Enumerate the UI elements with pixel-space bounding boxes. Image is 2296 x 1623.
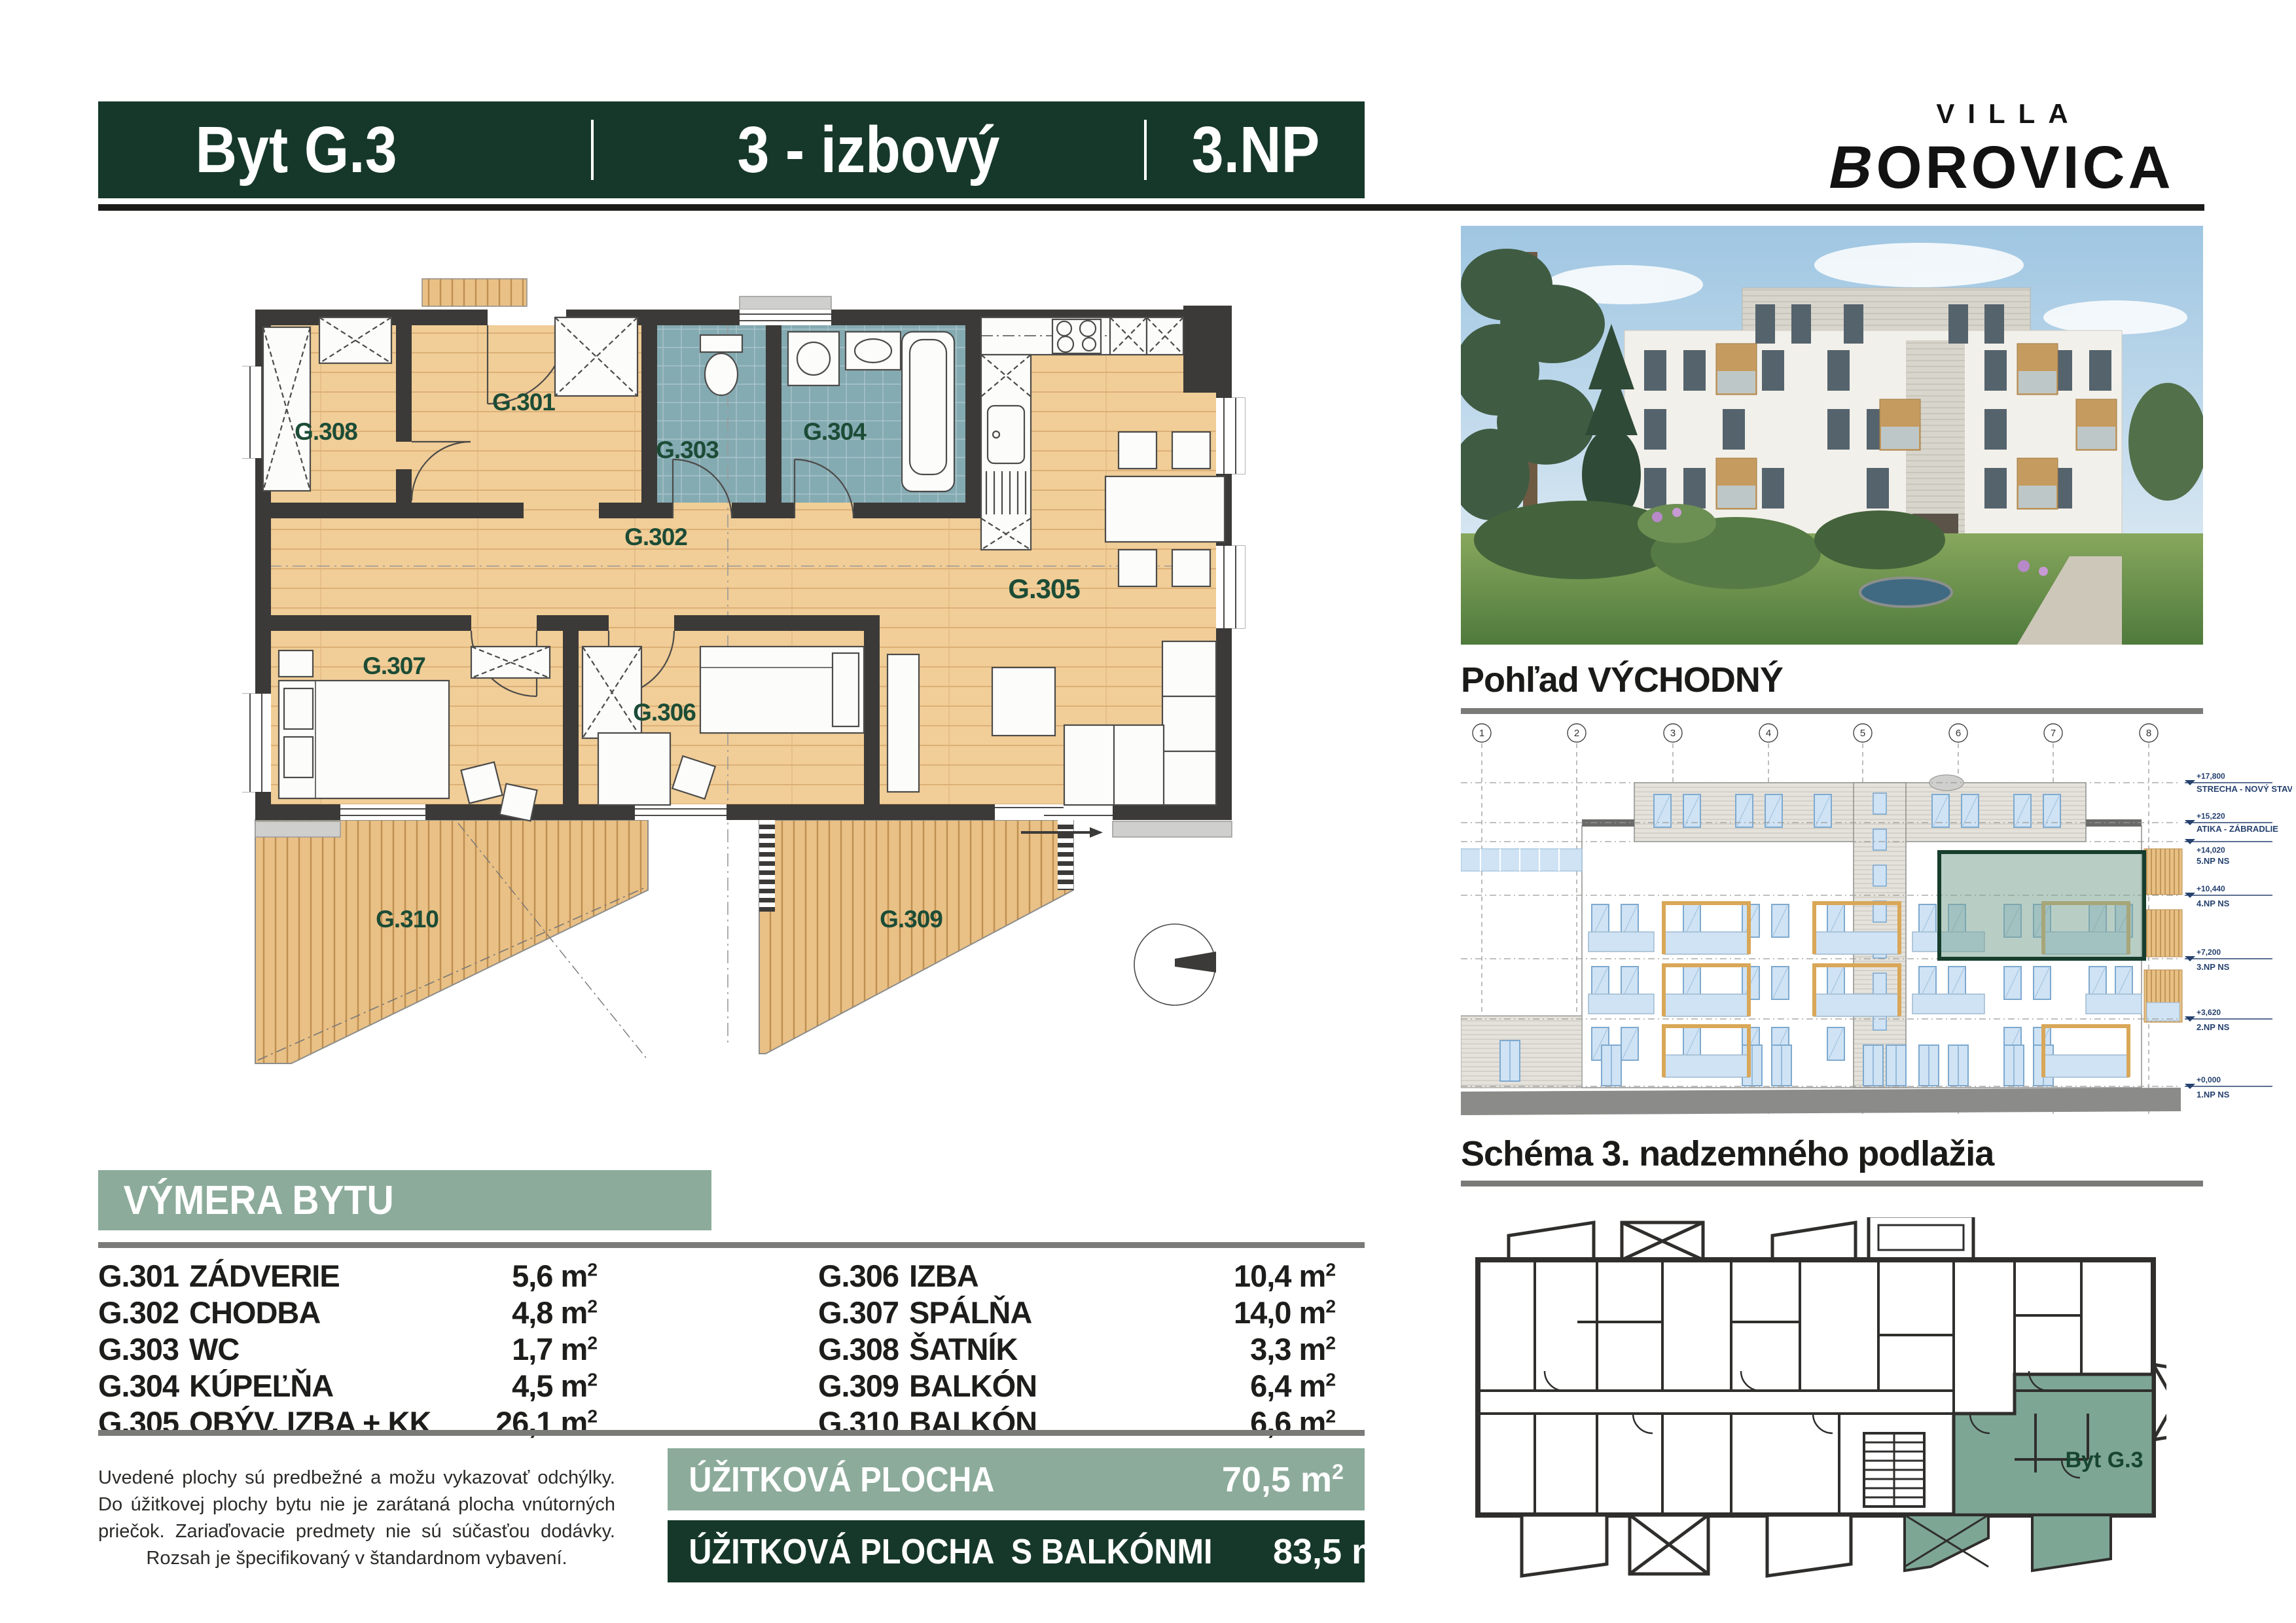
area-row: G.309BALKÓN6,4 m2 xyxy=(818,1368,1335,1404)
grid-number: 6 xyxy=(1956,728,1961,739)
level-name: 2.NP NS xyxy=(2197,1022,2230,1032)
east-view-title: Pohľad VÝCHODNÝ xyxy=(1461,660,1783,700)
area-row: G.302CHODBA4,8 m2 xyxy=(98,1294,597,1331)
schema-unit-label: Byt G.3 xyxy=(2065,1448,2143,1472)
level-name: 4.NP NS xyxy=(2197,899,2230,908)
room-label: G.309 xyxy=(880,906,942,933)
level-name: ATIKA - ZÁBRADLIE xyxy=(2197,824,2278,834)
room-label: G.303 xyxy=(656,437,719,463)
schema-stairs xyxy=(1864,1433,1924,1507)
unit-title: Byt G.3 xyxy=(122,101,470,198)
table-rule-top xyxy=(98,1242,1365,1248)
usable-area-bar: ÚŽITKOVÁ PLOCHA 70,5 m2 xyxy=(668,1448,1365,1510)
level-name: 1.NP NS xyxy=(2197,1090,2230,1099)
room-label: G.307 xyxy=(363,652,425,679)
usable-area-value: 70,5 m2 xyxy=(1222,1459,1365,1500)
access-gallery xyxy=(422,279,527,306)
grid-number: 1 xyxy=(1479,728,1484,739)
level-elev: +17,800 xyxy=(2197,772,2225,781)
usable-area-balconies-bar: ÚŽITKOVÁ PLOCHA S BALKÓNMI 83,5 m2 xyxy=(668,1520,1365,1582)
ground xyxy=(1461,1088,2181,1115)
grid-number: 2 xyxy=(1574,728,1579,739)
header-bar: Byt G.3 3 - izbový 3.NP xyxy=(98,101,1365,198)
room-label: G.306 xyxy=(633,699,696,726)
east-view-rule xyxy=(1461,708,2203,714)
room-label: G.310 xyxy=(376,906,439,933)
brand-logo: VILLA BOROVICA xyxy=(1800,98,2204,202)
area-row: G.306IZBA10,4 m2 xyxy=(818,1258,1335,1294)
brand-line1: VILLA xyxy=(1800,98,2204,130)
schema-rule xyxy=(1461,1181,2203,1186)
level-elev: +15,220 xyxy=(2197,811,2225,821)
unit-floor: 3.NP xyxy=(1160,101,1352,198)
pond xyxy=(1860,578,1952,607)
area-row: G.308ŠATNÍK3,3 m2 xyxy=(818,1331,1335,1368)
level-name: 5.NP NS xyxy=(2197,856,2230,866)
grid-number: 4 xyxy=(1766,728,1771,739)
level-elev: +0,000 xyxy=(2197,1075,2221,1084)
level-elev: +14,020 xyxy=(2197,846,2225,855)
area-row: G.307SPÁLŇA14,0 m2 xyxy=(818,1294,1335,1331)
area-table-title: VÝMERA BYTU xyxy=(98,1177,394,1224)
level-elev: +7,200 xyxy=(2197,948,2221,957)
room-label: G.302 xyxy=(624,524,687,550)
grid-number: 8 xyxy=(2146,728,2151,739)
schema-title: Schéma 3. nadzemného podlažia xyxy=(1461,1133,1994,1174)
area-table-right: G.306IZBA10,4 m2 G.307SPÁLŇA14,0 m2 G.30… xyxy=(818,1258,1335,1441)
header-separator xyxy=(591,120,594,180)
level-markers: +17,800 STRECHA - NOVÝ STAV +15,220 ATIK… xyxy=(2185,772,2292,1099)
balcony-g309 xyxy=(759,820,1073,1054)
level-name: 3.NP NS xyxy=(2197,962,2230,972)
level-elev: +10,440 xyxy=(2197,884,2225,893)
area-table-left: G.301ZÁDVERIE5,6 m2 G.302CHODBA4,8 m2 G.… xyxy=(98,1258,597,1441)
building-photo xyxy=(1461,226,2203,645)
level-elev: +3,620 xyxy=(2197,1008,2221,1017)
usable-area-balconies-value: 83,5 m2 xyxy=(1273,1531,1416,1572)
room-label: G.304 xyxy=(803,418,867,445)
schema-top-balconies xyxy=(1509,1217,1973,1260)
area-row: G.304KÚPEĽŇA4,5 m2 xyxy=(98,1368,597,1404)
room-label: G.305 xyxy=(1008,573,1080,604)
disclaimer-text: Uvedené plochy sú predbežné a možu vykaz… xyxy=(98,1465,615,1572)
grid-number: 3 xyxy=(1670,728,1676,739)
floor-schema-drawing: Byt G.3 xyxy=(1473,1217,2166,1616)
unit-highlight-elevation xyxy=(1939,852,2144,959)
room-label: G.308 xyxy=(295,418,357,445)
balcony-g310 xyxy=(255,820,648,1063)
area-table-title-bar: VÝMERA BYTU xyxy=(98,1170,711,1230)
area-row: G.301ZÁDVERIE5,6 m2 xyxy=(98,1258,597,1294)
east-elevation-drawing: 1 2 3 4 5 6 7 8 xyxy=(1461,715,2292,1137)
floor-plan-drawing: G.308 G.301 G.303 G.304 G.302 G.305 G.30… xyxy=(242,275,1263,1145)
room-label: G.301 xyxy=(492,389,555,416)
grid-number: 5 xyxy=(1860,728,1865,739)
area-row: G.303WC1,7 m2 xyxy=(98,1331,597,1368)
level-name: STRECHA - NOVÝ STAV xyxy=(2197,784,2292,794)
header-rule xyxy=(98,204,2204,211)
grid-number: 7 xyxy=(2051,728,2056,739)
header-separator xyxy=(1144,120,1147,180)
north-arrow-icon xyxy=(1134,924,1216,1005)
table-rule-bottom xyxy=(98,1430,1365,1436)
schema-bottom-balconies xyxy=(1522,1515,1851,1576)
usable-area-balconies-label: ÚŽITKOVÁ PLOCHA S BALKÓNMI xyxy=(668,1531,1212,1572)
usable-area-label: ÚŽITKOVÁ PLOCHA xyxy=(668,1459,995,1500)
brand-line2: BOROVICA xyxy=(1804,134,2200,202)
unit-layout: 3 - izbový xyxy=(626,101,1110,198)
